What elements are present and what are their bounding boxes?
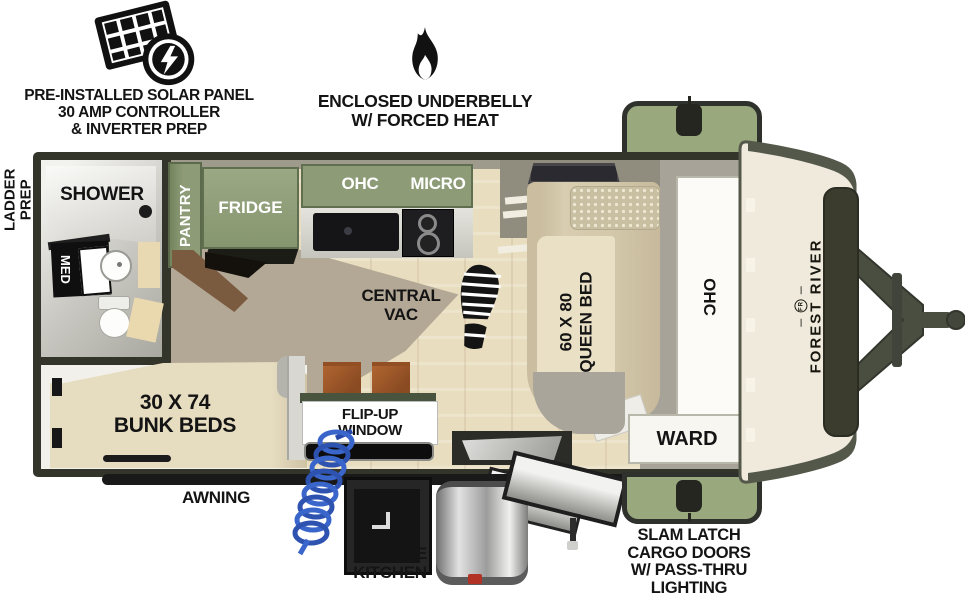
annotation-line: LIGHTING (600, 580, 778, 598)
brand-mark: — FR — FOREST RIVER (794, 180, 824, 432)
annotation-line: ENCLOSED UNDERBELLY (287, 92, 563, 111)
burner-icon (417, 232, 440, 255)
rv-floorplan-diagram: PRE-INSTALLED SOLAR PANEL 30 AMP CONTROL… (0, 0, 965, 598)
valve-icon (468, 574, 482, 584)
door-latch-stem (688, 96, 691, 105)
bathroom-sink (100, 250, 132, 282)
central-vac-line: VAC (345, 306, 457, 325)
microwave-label: MICRO (400, 175, 476, 194)
solar-panel-icon (88, 0, 203, 88)
annotation-line: & INVERTER PREP (5, 121, 273, 138)
pantry-label: PANTRY (177, 184, 194, 247)
bunk-beds-label: 30 X 74 BUNK BEDS (85, 392, 265, 437)
fridge: FRIDGE (202, 167, 299, 249)
bed-pillow (570, 186, 660, 230)
cargo-door-handle-icon (676, 480, 702, 512)
brand-monogram: — FR — (794, 285, 807, 326)
fridge-label: FRIDGE (218, 198, 282, 218)
med-label: MED (54, 244, 76, 294)
step-foot (567, 541, 578, 550)
queen-name: QUEEN BED (577, 271, 597, 372)
cargo-door-handle-icon (676, 104, 702, 136)
annotation-line: PREP (18, 180, 34, 221)
kitchen-sink (313, 213, 399, 251)
bunk-ladder-bracket (52, 428, 62, 448)
cargo-doors-annotation: SLAM LATCH CARGO DOORS W/ PASS-THRU LIGH… (600, 527, 778, 598)
med-label-text: MED (58, 255, 73, 284)
queen-size: 60 X 80 (557, 293, 577, 352)
bunk-size: 30 X 74 (85, 392, 265, 415)
wardrobe-label: WARD (656, 428, 717, 451)
annotation-line: LADDER (2, 169, 18, 232)
bath-cabinet (138, 242, 160, 288)
sink-drain-icon (344, 227, 352, 235)
shower-label: SHOWER (46, 185, 158, 206)
bunk-name: BUNK BEDS (85, 415, 265, 438)
drain-icon (139, 205, 152, 218)
ladder-prep-annotation: LADDER PREP (0, 156, 36, 244)
solar-annotation: PRE-INSTALLED SOLAR PANEL 30 AMP CONTROL… (5, 87, 273, 138)
annotation-line: CARGO DOORS (600, 545, 778, 563)
bunk-trim (103, 455, 171, 462)
step-leg (570, 518, 576, 542)
ohc-front-text: OHC (699, 278, 719, 316)
annotation-line: SLAM LATCH (600, 527, 778, 545)
flame-icon (402, 26, 448, 88)
wardrobe: WARD (628, 414, 746, 464)
ok-line: OUTSIDE (330, 545, 450, 564)
burner-icon (418, 214, 437, 233)
annotation-line: 30 AMP CONTROLLER (5, 104, 273, 121)
queen-bed-label: 60 X 80 QUEEN BED (517, 252, 637, 392)
brand-name: FOREST RIVER (807, 239, 824, 374)
boot-print-icon (447, 260, 509, 354)
central-vac-line: CENTRAL (345, 287, 457, 306)
underbelly-annotation: ENCLOSED UNDERBELLY W/ FORCED HEAT (287, 92, 563, 131)
bunk-ladder-bracket (52, 378, 62, 396)
annotation-line: W/ FORCED HEAT (287, 111, 563, 130)
central-vac-label: CENTRAL VAC (345, 287, 457, 324)
toilet (99, 308, 130, 338)
roof-vent (528, 163, 620, 184)
door-latch-stem (688, 513, 691, 522)
awning-label: AWNING (156, 489, 276, 508)
annotation-line: W/ PASS-THRU (600, 562, 778, 580)
ok-line: KITCHEN (330, 564, 450, 583)
ohc-kitchen-label: OHC (330, 175, 390, 194)
outside-faucet-icon (386, 512, 390, 529)
flip-up-line: FLIP-UP (338, 407, 402, 423)
ohc-front-label: OHC (684, 176, 734, 418)
outside-kitchen-label: OUTSIDE KITCHEN (330, 545, 450, 582)
fr-logo-icon: FR (794, 300, 807, 313)
annotation-line: PRE-INSTALLED SOLAR PANEL (5, 87, 273, 104)
faucet-icon (117, 262, 122, 267)
